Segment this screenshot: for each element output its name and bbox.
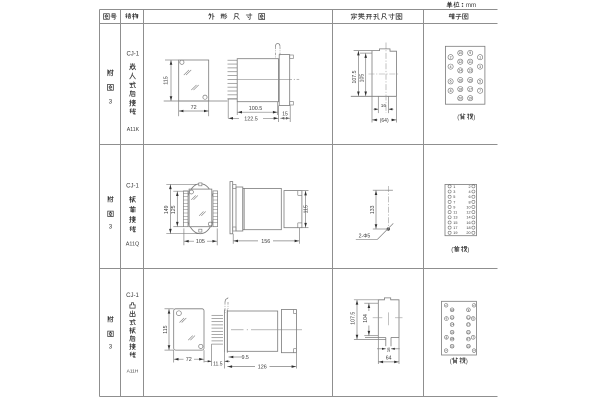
svg-text:CJ-1: CJ-1 <box>126 51 139 57</box>
svg-text:115: 115 <box>164 76 170 85</box>
svg-text:115: 115 <box>163 325 169 333</box>
svg-text:7: 7 <box>479 89 481 93</box>
svg-text:): ) <box>473 114 475 121</box>
svg-text:16: 16 <box>458 78 462 82</box>
svg-text:19: 19 <box>468 97 472 101</box>
svg-text:19: 19 <box>453 231 457 235</box>
svg-text:5: 5 <box>479 80 481 84</box>
svg-text:2: 2 <box>468 185 470 189</box>
svg-text:14: 14 <box>450 323 454 327</box>
svg-text:2-Φ5: 2-Φ5 <box>359 234 371 240</box>
svg-text:5: 5 <box>453 195 455 199</box>
svg-text:3: 3 <box>109 343 113 350</box>
svg-text:72: 72 <box>191 105 197 111</box>
svg-text:16: 16 <box>386 347 391 352</box>
svg-text:18: 18 <box>458 87 462 91</box>
svg-text:126: 126 <box>258 365 267 371</box>
svg-text:11.5: 11.5 <box>213 361 223 367</box>
svg-text:16: 16 <box>466 221 470 225</box>
svg-text:107.5: 107.5 <box>352 70 358 83</box>
svg-text:6: 6 <box>468 195 470 199</box>
svg-text:16: 16 <box>381 103 387 109</box>
svg-text:15: 15 <box>282 111 288 117</box>
svg-text:17: 17 <box>468 87 472 91</box>
svg-text:CJ-1: CJ-1 <box>126 184 139 190</box>
svg-text:105: 105 <box>196 239 205 245</box>
svg-text:CJ-1: CJ-1 <box>126 293 139 299</box>
svg-text:A11K: A11K <box>127 127 140 133</box>
svg-text:72: 72 <box>186 357 192 363</box>
svg-text:149: 149 <box>164 205 170 214</box>
svg-text:): ) <box>466 358 468 365</box>
svg-text:mm: mm <box>466 2 476 9</box>
svg-text:156: 156 <box>261 239 270 245</box>
svg-text:20: 20 <box>466 231 470 235</box>
svg-text:9.5: 9.5 <box>242 355 249 361</box>
svg-text:3: 3 <box>109 224 113 231</box>
svg-text:15: 15 <box>453 221 457 225</box>
svg-text:12: 12 <box>466 211 470 215</box>
svg-text:125: 125 <box>171 205 177 214</box>
svg-text:9: 9 <box>469 51 471 55</box>
svg-text:A11H: A11H <box>127 368 139 374</box>
svg-text:11: 11 <box>467 316 470 320</box>
svg-text:11: 11 <box>468 60 472 64</box>
svg-text:(64): (64) <box>380 118 389 124</box>
svg-text:10: 10 <box>458 51 462 55</box>
svg-text:8: 8 <box>468 200 470 204</box>
svg-text:3: 3 <box>453 190 455 194</box>
svg-text:4: 4 <box>468 190 470 194</box>
svg-text:9: 9 <box>453 205 455 209</box>
svg-text:2: 2 <box>450 56 452 60</box>
svg-text:13: 13 <box>467 323 471 327</box>
svg-text:8: 8 <box>450 89 452 93</box>
svg-text:133: 133 <box>370 205 376 214</box>
svg-text:122.5: 122.5 <box>244 116 258 122</box>
svg-text:12: 12 <box>458 60 462 64</box>
svg-text:18: 18 <box>450 337 454 341</box>
svg-text:15: 15 <box>468 78 472 82</box>
svg-text:): ) <box>467 247 469 254</box>
svg-text:7: 7 <box>453 200 455 204</box>
svg-text:115: 115 <box>304 205 310 213</box>
svg-text:11: 11 <box>453 211 457 215</box>
svg-text:6: 6 <box>450 80 452 84</box>
svg-text:19: 19 <box>467 344 471 348</box>
svg-text:1: 1 <box>453 185 455 189</box>
svg-text:1: 1 <box>479 56 481 60</box>
svg-text:18: 18 <box>466 226 470 230</box>
svg-text:10: 10 <box>466 205 470 209</box>
svg-text:17: 17 <box>453 226 457 230</box>
svg-text:17: 17 <box>467 337 471 341</box>
svg-text:100.5: 100.5 <box>249 106 263 112</box>
svg-text:13: 13 <box>453 216 457 220</box>
svg-text:12: 12 <box>450 316 454 320</box>
svg-text:20: 20 <box>458 97 462 101</box>
svg-text:104: 104 <box>363 314 369 323</box>
svg-text:64: 64 <box>386 356 392 362</box>
svg-text:14: 14 <box>466 216 470 220</box>
svg-text:107.5: 107.5 <box>351 312 357 325</box>
svg-text:20: 20 <box>450 344 454 348</box>
svg-text:16: 16 <box>450 330 454 334</box>
svg-text:3: 3 <box>109 98 113 105</box>
svg-text:10: 10 <box>450 308 454 312</box>
svg-text:14: 14 <box>458 69 462 73</box>
svg-text:13: 13 <box>468 69 472 73</box>
svg-text:15: 15 <box>467 330 471 334</box>
svg-text:A11Q: A11Q <box>126 241 139 247</box>
svg-text:3: 3 <box>479 65 481 69</box>
svg-text:105: 105 <box>359 74 365 83</box>
svg-text:4: 4 <box>450 65 452 69</box>
